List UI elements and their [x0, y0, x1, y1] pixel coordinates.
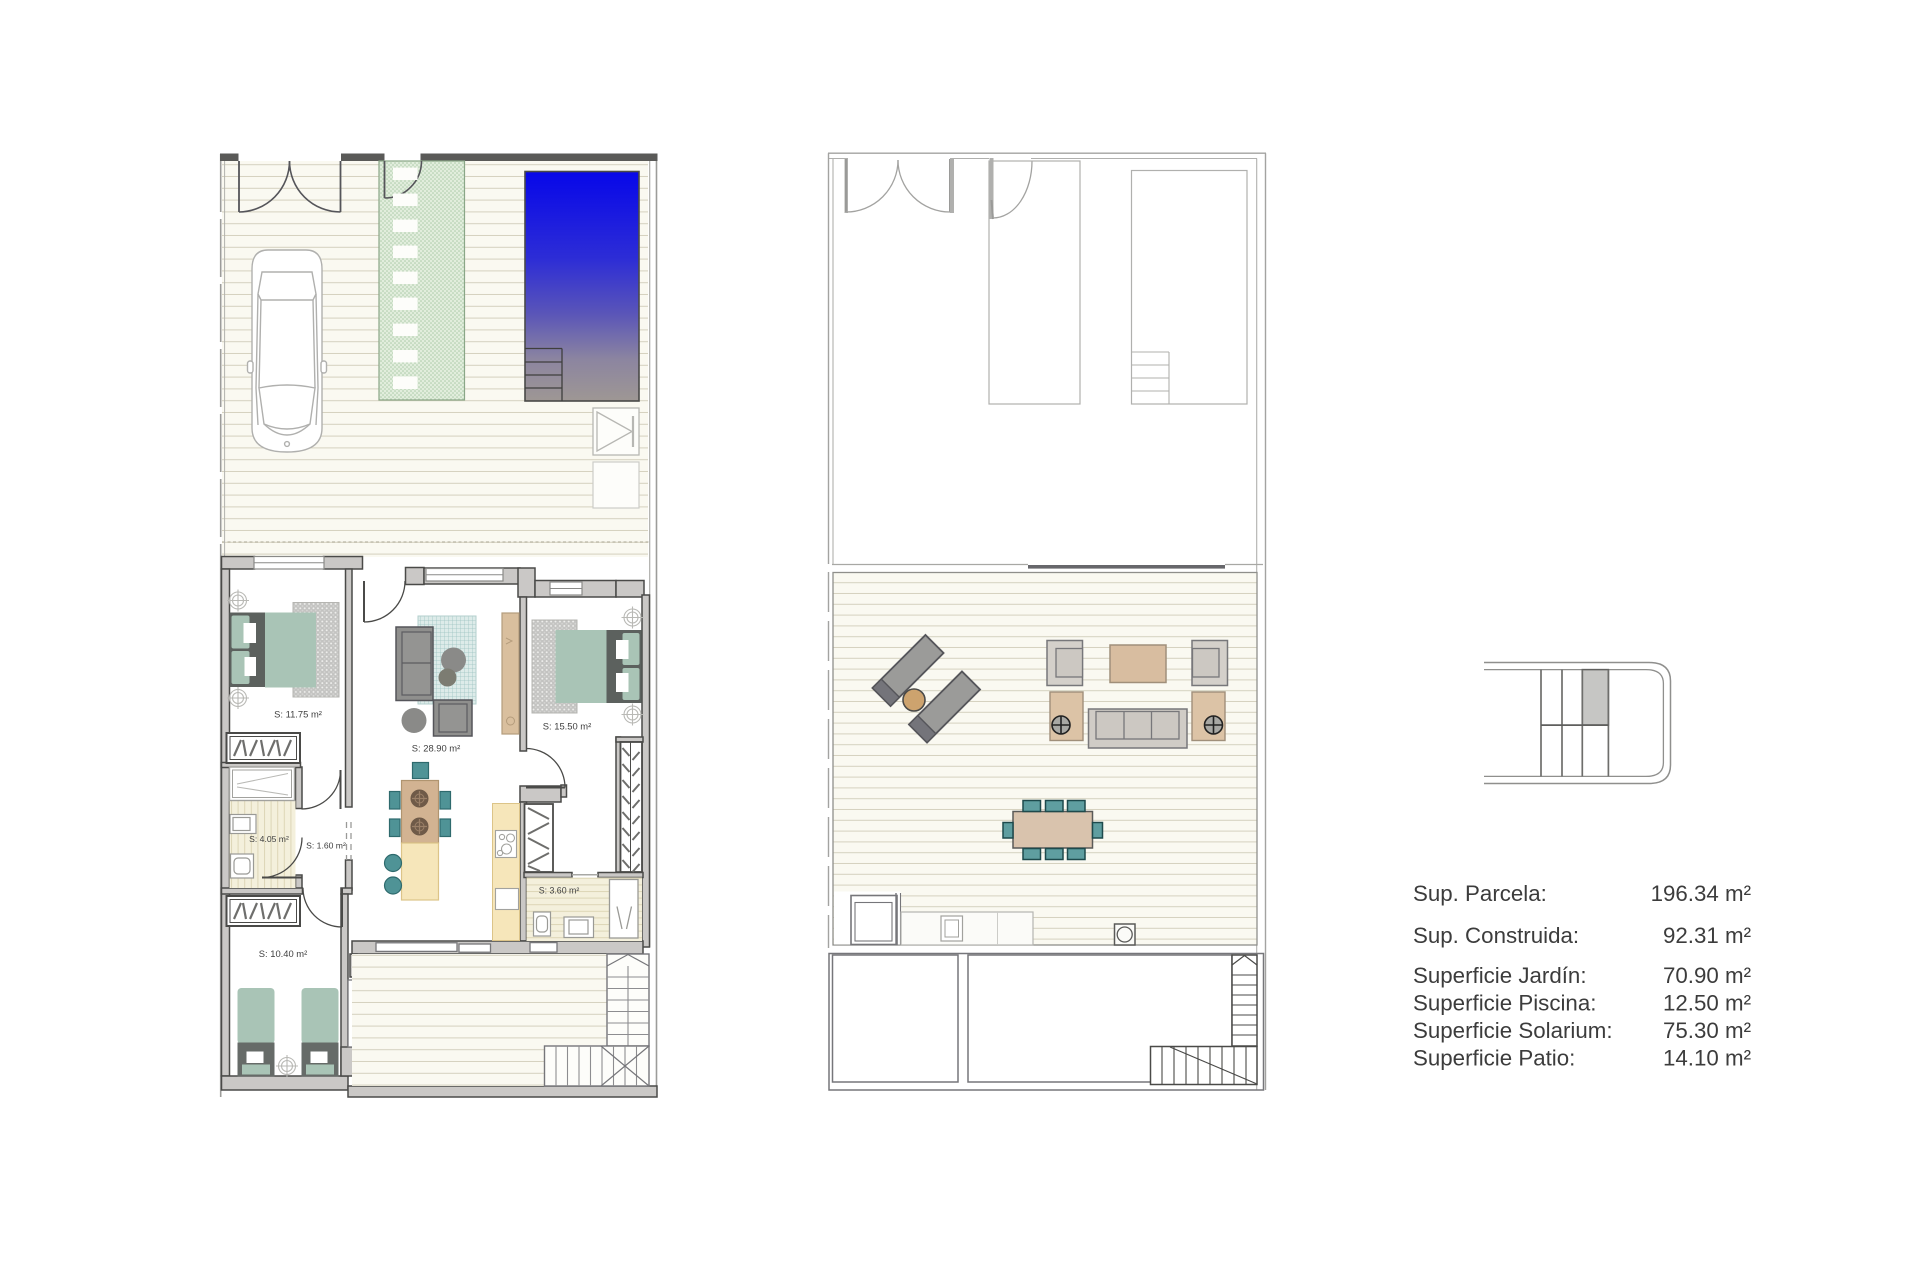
svg-text:75.30 m²: 75.30 m² [1663, 1018, 1751, 1043]
svg-text:196.34 m²: 196.34 m² [1651, 881, 1751, 906]
svg-text:12.50 m²: 12.50 m² [1663, 991, 1751, 1016]
svg-text:S: 3.60 m²: S: 3.60 m² [539, 886, 580, 896]
svg-text:Superficie Jardín:: Superficie Jardín: [1413, 963, 1587, 988]
svg-text:14.10 m²: 14.10 m² [1663, 1046, 1751, 1071]
svg-text:Superficie Patio:: Superficie Patio: [1413, 1046, 1575, 1071]
svg-text:S: 10.40 m²: S: 10.40 m² [259, 948, 307, 959]
svg-text:S: 11.75 m²: S: 11.75 m² [274, 709, 322, 720]
svg-text:S: 4.05 m²: S: 4.05 m² [249, 834, 289, 844]
svg-text:Sup. Construida:: Sup. Construida: [1413, 923, 1579, 948]
svg-text:S: 28.90 m²: S: 28.90 m² [412, 743, 460, 754]
svg-text:92.31 m²: 92.31 m² [1663, 923, 1751, 948]
svg-text:S: 1.60 m²: S: 1.60 m² [306, 841, 346, 851]
svg-text:Superficie Solarium:: Superficie Solarium: [1413, 1018, 1613, 1043]
svg-text:S: 15.50 m²: S: 15.50 m² [543, 721, 591, 732]
svg-text:Sup. Parcela:: Sup. Parcela: [1413, 881, 1547, 906]
svg-text:70.90 m²: 70.90 m² [1663, 963, 1751, 988]
svg-text:Superficie Piscina:: Superficie Piscina: [1413, 991, 1596, 1016]
